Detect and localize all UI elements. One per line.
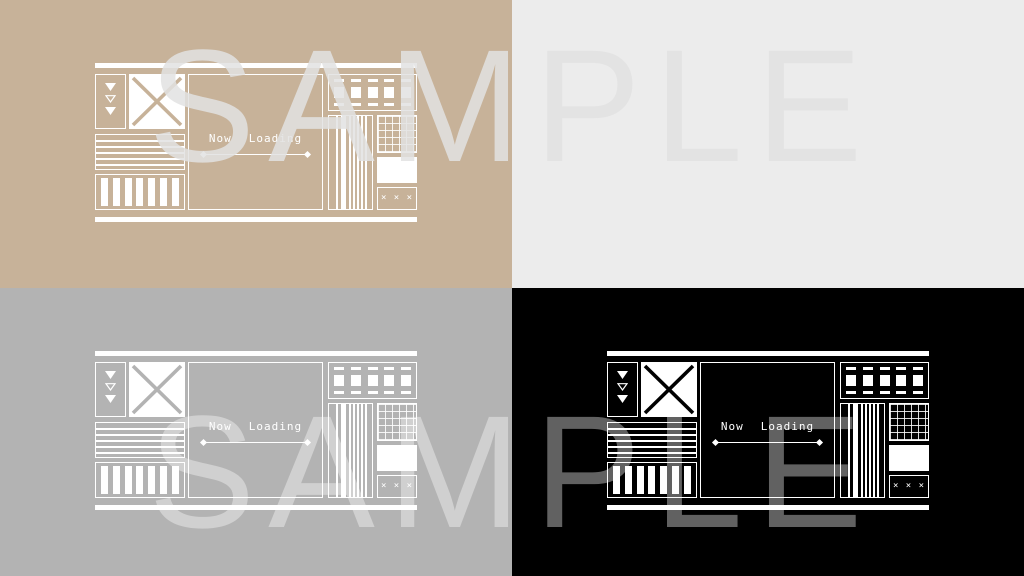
vertical-lines-panel [328,403,373,498]
dash-cell [913,391,923,394]
equalizer-bar [172,178,179,206]
square-cell [863,375,873,386]
stripe-line [96,158,184,160]
x-pattern-box [641,362,697,417]
dash-cell [863,391,873,394]
square-cell [896,375,906,386]
dots-row [334,367,411,370]
dash-cell [334,391,344,394]
dash-cell [334,79,344,82]
stripe-line [96,428,184,430]
bottom-bar [607,505,929,510]
equalizer-bar [148,466,155,494]
triangle-panel [95,362,126,417]
loading-text: Now Loading [701,420,834,433]
dots-panel [840,362,929,399]
square-cell [401,87,411,98]
equalizer-bar [125,466,132,494]
xxx-label: × × × [893,482,925,491]
dash-cell [846,367,856,370]
vertical-line [349,116,351,209]
stripe-line [96,152,184,154]
equalizer-bar [160,178,167,206]
dots-row [334,103,411,106]
top-bar [95,63,417,68]
dash-cell [334,103,344,106]
vertical-line [365,116,367,209]
equalizer-bar [148,178,155,206]
stripe-line [608,428,696,430]
loading-word-now: Now [209,132,232,145]
loading-frame: Now Loading [95,63,417,223]
loading-box: Now Loading [188,74,323,210]
top-bar [95,351,417,356]
stripe-line [96,164,184,166]
dash-cell [913,367,923,370]
progress-line [203,154,308,155]
square-cell [880,375,890,386]
dash-cell [384,367,394,370]
equalizer-panel [95,174,185,210]
vertical-line [357,116,359,209]
dash-cell [368,391,378,394]
dash-cell [401,391,411,394]
dash-cell [384,79,394,82]
loading-word-loading: Loading [249,420,302,433]
vertical-line [361,404,363,497]
equalizer-bar [637,466,644,494]
dash-cell [368,79,378,82]
vertical-line [336,116,338,209]
quadrant-light-gray [512,0,1024,288]
stripe-line [608,452,696,454]
loading-word-now: Now [209,420,232,433]
loading-box: Now Loading [188,362,323,498]
dash-cell [368,367,378,370]
solid-white-box [377,445,417,471]
vertical-line [353,116,355,209]
triangle-down-icon [105,107,116,115]
stripes-panel [607,422,697,458]
bottom-bar [95,217,417,222]
x-cross-icon [129,362,185,417]
square-cell [351,87,361,98]
triangle-down-icon [105,83,116,91]
square-cell [846,375,856,386]
vertical-line [357,404,359,497]
bottom-bar [95,505,417,510]
vertical-line [336,404,338,497]
equalizer-bar [136,466,143,494]
loading-text: Now Loading [189,132,322,145]
solid-white-box [377,157,417,183]
vertical-line [353,404,355,497]
dash-cell [846,391,856,394]
vertical-line [853,404,858,497]
equalizer-bar [648,466,655,494]
vertical-line [341,116,346,209]
equalizer-bar [101,466,108,494]
equalizer-bar [172,466,179,494]
triangle-down-outline-icon [105,95,116,103]
equalizer-bar [684,466,691,494]
equalizer-bar [672,466,679,494]
stripe-line [608,446,696,448]
xxx-box: × × × [889,475,929,498]
dash-cell [334,367,344,370]
grid-pattern-box [377,403,417,441]
equalizer-panel [607,462,697,498]
progress-line [715,442,820,443]
equalizer-bar [101,178,108,206]
vertical-line [865,404,867,497]
stripe-line [96,140,184,142]
progress-line [203,442,308,443]
x-pattern-box [129,74,185,129]
triangle-panel [607,362,638,417]
dots-row [846,391,923,394]
dash-cell [351,391,361,394]
triangle-down-outline-icon [105,383,116,391]
stripes-panel [95,422,185,458]
triangle-down-icon [105,371,116,379]
xxx-box: × × × [377,187,417,210]
loading-word-now: Now [721,420,744,433]
quadrant-tan: Now Loading [0,0,512,288]
square-cell [334,375,344,386]
dash-cell [351,103,361,106]
triangle-down-icon [105,395,116,403]
vertical-line [861,404,863,497]
solid-white-box [889,445,929,471]
equalizer-bar [613,466,620,494]
equalizer-bar [625,466,632,494]
triangle-down-icon [617,371,628,379]
loading-text: Now Loading [189,420,322,433]
dots-row [846,375,923,386]
dash-cell [401,79,411,82]
x-pattern-box [129,362,185,417]
dash-cell [863,367,873,370]
dots-row [334,391,411,394]
stripes-panel [95,134,185,170]
dash-cell [351,79,361,82]
xxx-label: × × × [381,194,413,203]
dash-cell [880,391,890,394]
square-cell [384,87,394,98]
vertical-line [361,116,363,209]
square-cell [401,375,411,386]
grid-pattern-box [889,403,929,441]
stripe-line [96,446,184,448]
dash-cell [351,367,361,370]
vertical-line [869,404,871,497]
dots-row [334,375,411,386]
top-bar [607,351,929,356]
dots-row [334,79,411,82]
vertical-line [877,404,879,497]
vertical-line [349,404,351,497]
dots-panel [328,74,417,111]
xxx-label: × × × [381,482,413,491]
square-cell [913,375,923,386]
dash-cell [384,103,394,106]
dash-cell [896,391,906,394]
dash-cell [401,103,411,106]
vertical-lines-panel [840,403,885,498]
dots-row [334,87,411,98]
loading-frame: Now Loading [95,351,417,511]
equalizer-bar [125,178,132,206]
square-cell [368,375,378,386]
vertical-line [341,404,346,497]
stripe-line [96,146,184,148]
square-cell [351,375,361,386]
dash-cell [368,103,378,106]
vertical-lines-panel [328,115,373,210]
stripe-line [96,452,184,454]
dash-cell [896,367,906,370]
equalizer-bar [113,466,120,494]
equalizer-bar [160,466,167,494]
loading-frame: Now Loading [607,351,929,511]
triangle-down-icon [617,395,628,403]
vertical-line [873,404,875,497]
quadrant-black: Now Loading [512,288,1024,576]
vertical-line [365,404,367,497]
loading-word-loading: Loading [249,132,302,145]
x-cross-icon [129,74,185,129]
dash-cell [384,391,394,394]
stripe-line [608,440,696,442]
square-cell [334,87,344,98]
triangle-down-outline-icon [617,383,628,391]
stripe-line [96,434,184,436]
triangle-panel [95,74,126,129]
quadrant-gray: Now Loading [0,288,512,576]
equalizer-bar [113,178,120,206]
dash-cell [880,367,890,370]
stripe-line [96,440,184,442]
equalizer-bar [660,466,667,494]
square-cell [368,87,378,98]
dash-cell [401,367,411,370]
dots-row [846,367,923,370]
stripe-line [608,434,696,436]
loading-word-loading: Loading [761,420,814,433]
square-cell [384,375,394,386]
vertical-line [848,404,850,497]
xxx-box: × × × [377,475,417,498]
equalizer-panel [95,462,185,498]
x-cross-icon [641,362,697,417]
grid-pattern-box [377,115,417,153]
loading-box: Now Loading [700,362,835,498]
equalizer-bar [136,178,143,206]
dots-panel [328,362,417,399]
